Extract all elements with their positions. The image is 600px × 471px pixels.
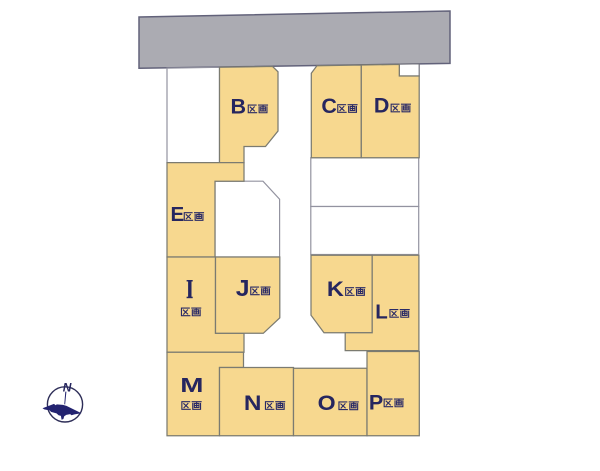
svg-text:N: N [244, 391, 262, 415]
svg-text:C: C [321, 94, 337, 118]
svg-text:B: B [231, 95, 247, 119]
svg-text:L: L [375, 301, 388, 324]
svg-text:N: N [63, 381, 72, 395]
svg-text:J: J [236, 275, 250, 301]
svg-text:M: M [180, 375, 203, 397]
svg-text:D: D [374, 93, 390, 117]
svg-text:K: K [327, 277, 345, 301]
svg-text:O: O [318, 391, 336, 415]
svg-text:E: E [171, 203, 185, 226]
svg-text:P: P [369, 390, 383, 414]
